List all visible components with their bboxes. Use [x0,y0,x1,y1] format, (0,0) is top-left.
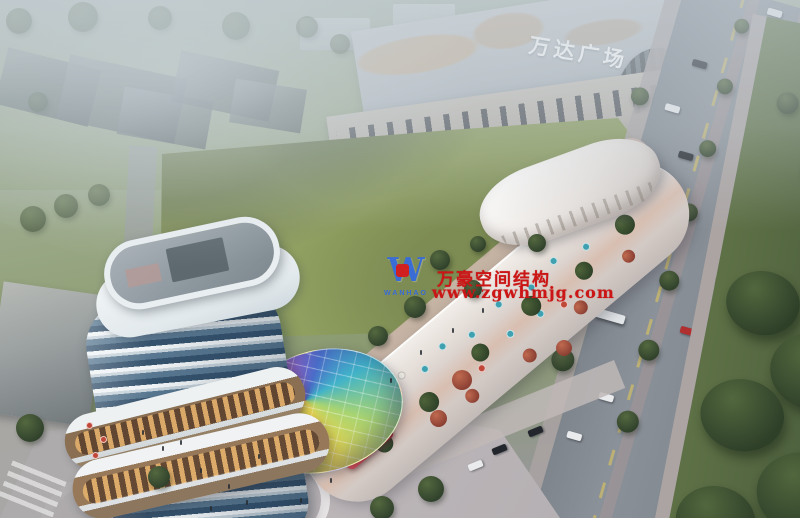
terrace-tree [468,340,493,365]
umbrella [476,363,487,374]
autumn-tree [430,410,447,427]
tree [418,476,444,502]
tree [368,326,388,346]
umbrella [396,370,407,381]
park-tree-cluster [670,479,762,518]
umbrella [437,341,448,352]
person [330,478,332,483]
tree [528,234,546,252]
autumn-tree [520,346,540,366]
tree [16,414,44,442]
person [482,308,484,313]
red-umbrella [86,422,93,429]
watermark-red-square-icon [396,264,409,277]
person [200,468,202,473]
red-umbrella [100,436,107,443]
tree [470,236,486,252]
aerial-rendering-scene: 万达广场 [0,0,800,518]
person [300,498,302,503]
haze-overlay [0,0,800,230]
umbrella [505,328,516,339]
park-tree-cluster [749,444,800,518]
person [210,506,212,511]
person [142,430,144,435]
person [228,484,230,489]
umbrella [419,363,430,374]
person [180,440,182,445]
person [162,446,164,451]
autumn-tree [452,370,472,390]
car [566,431,582,442]
watermark-logo: W WANHAO [380,258,432,300]
watermark-logo-text: WANHAO [380,290,432,297]
person [420,350,422,355]
umbrella [580,241,591,252]
person [452,328,454,333]
umbrella [466,329,477,340]
tree [148,466,170,488]
park-tree-cluster [721,265,800,342]
person [246,500,248,505]
person [390,378,392,383]
watermark-website-url: www.zgwhmjg.com [432,283,615,302]
terrace-tree [571,258,596,283]
red-umbrella [92,452,99,459]
person [258,454,260,459]
autumn-tree [556,340,572,356]
autumn-tree [619,247,637,265]
tree [370,496,394,518]
